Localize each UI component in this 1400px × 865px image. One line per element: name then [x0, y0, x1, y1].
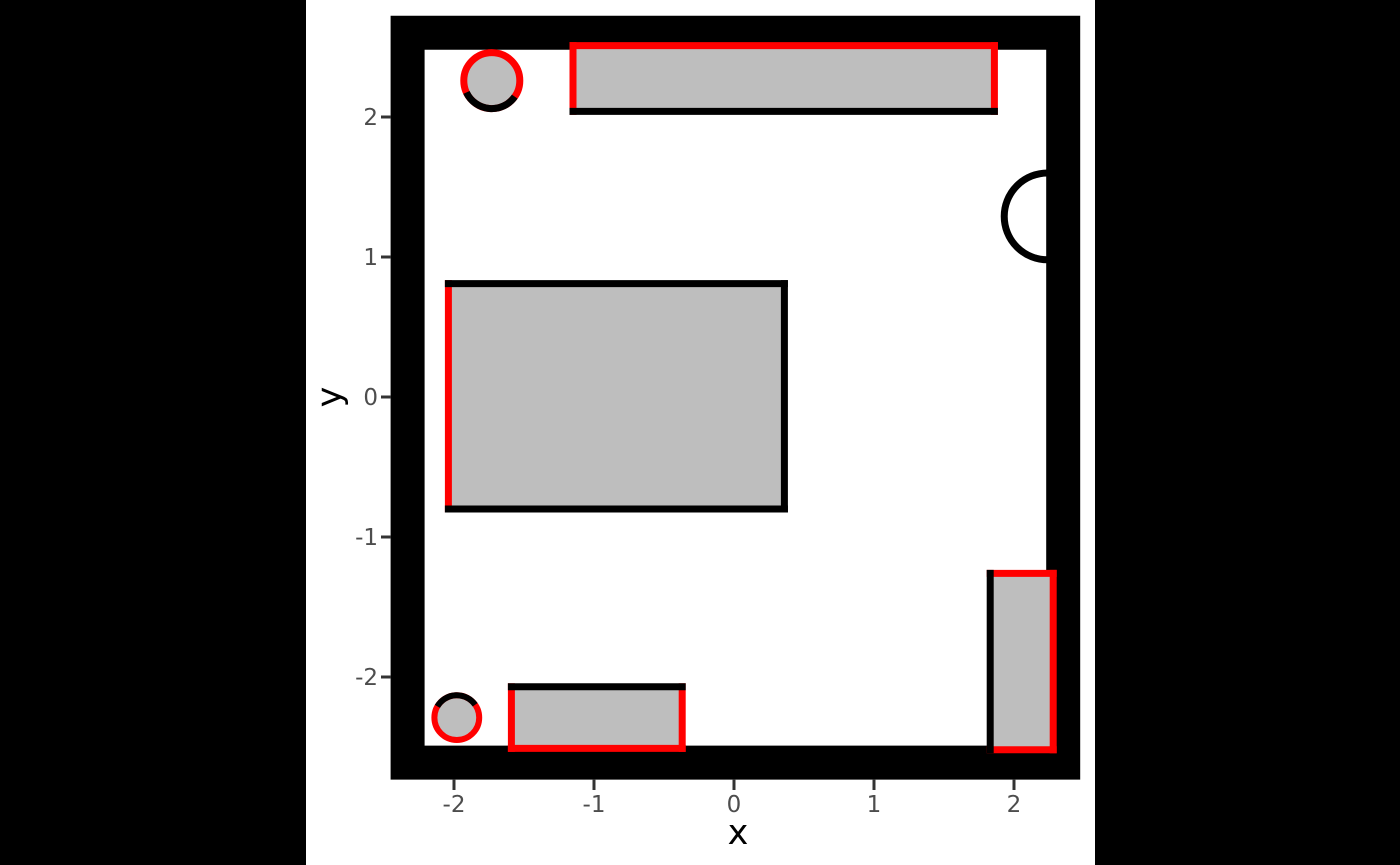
y-axis-label: y [308, 375, 352, 419]
tall-cabinet-right-wall [990, 573, 1053, 749]
small-table-bottom-wall [511, 687, 682, 749]
y-tick-label: 1 [363, 245, 378, 271]
room-floorplan-canvas: -2-1012210-1-2 [0, 0, 1400, 865]
large-table-center-left [448, 284, 784, 509]
x-tick-label: 2 [1007, 792, 1022, 818]
x-axis-label: x [638, 816, 838, 851]
x-tick-label: 1 [867, 792, 882, 818]
x-tick-label: -1 [583, 792, 606, 818]
y-tick-label: -1 [355, 525, 378, 551]
y-tick-label: 2 [363, 105, 378, 131]
y-tick-label: -2 [355, 665, 378, 691]
x-tick-label: -2 [443, 792, 466, 818]
long-table-top-wall [573, 46, 994, 112]
floorplan-screenshot: -2-1012210-1-2 x y [0, 0, 1400, 865]
door-arc [1004, 173, 1047, 260]
y-tick-label: 0 [363, 385, 378, 411]
